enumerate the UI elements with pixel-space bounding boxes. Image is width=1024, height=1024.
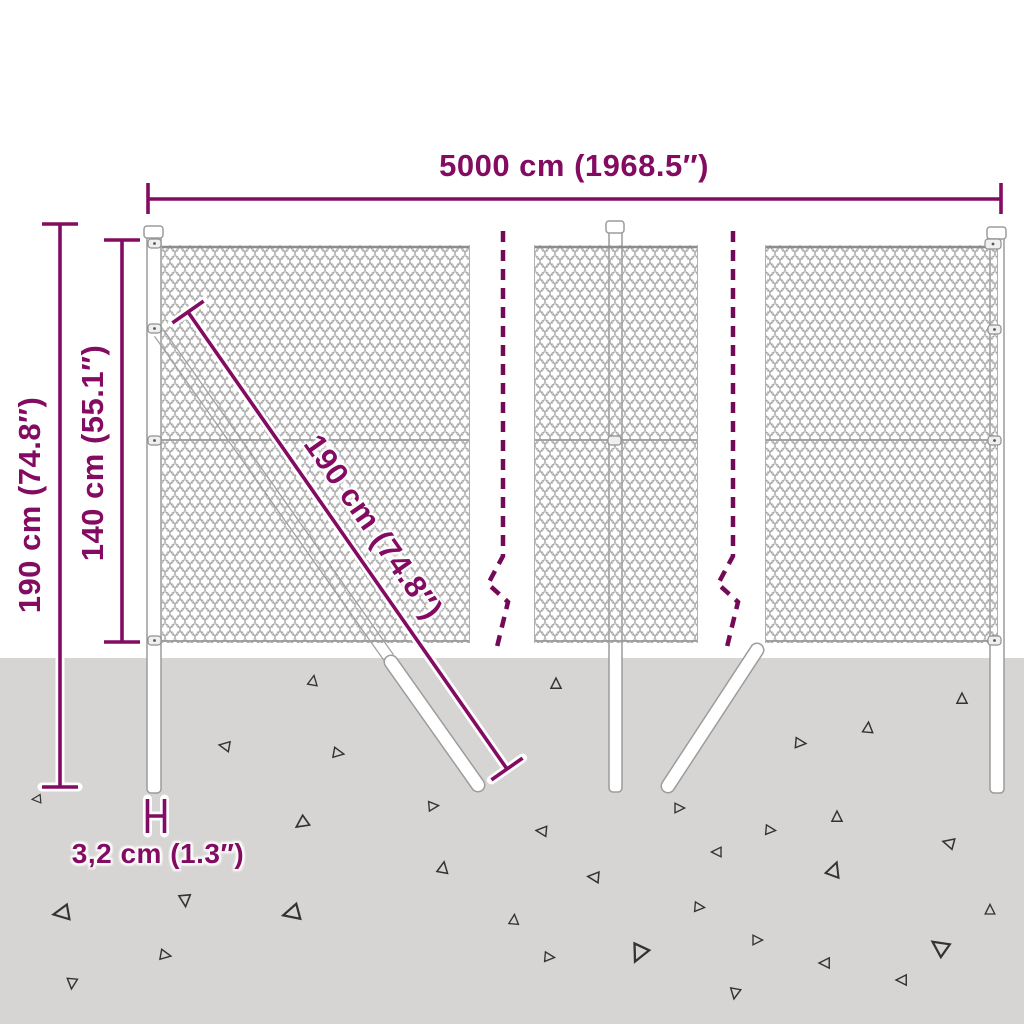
- total-height-dimension-label: 190 cm (74.8″): [12, 397, 48, 614]
- break-line-right: [718, 231, 738, 651]
- fence-post-left: [144, 226, 163, 793]
- fence-mesh-panels: [161, 245, 998, 643]
- post-diameter-dimension-label: 3,2 cm (1.3″): [72, 838, 244, 870]
- mesh-height-dimension-label: 140 cm (55.1″): [75, 345, 111, 562]
- fence-dimension-diagram: 5000 cm (1968.5″) 190 cm (74.8″) 140 cm …: [0, 0, 1024, 1024]
- width-dimension-label: 5000 cm (1968.5″): [439, 148, 709, 184]
- width-dimension-line: [148, 183, 1001, 214]
- mesh-panel-3: [765, 245, 998, 643]
- break-line-left: [488, 231, 508, 651]
